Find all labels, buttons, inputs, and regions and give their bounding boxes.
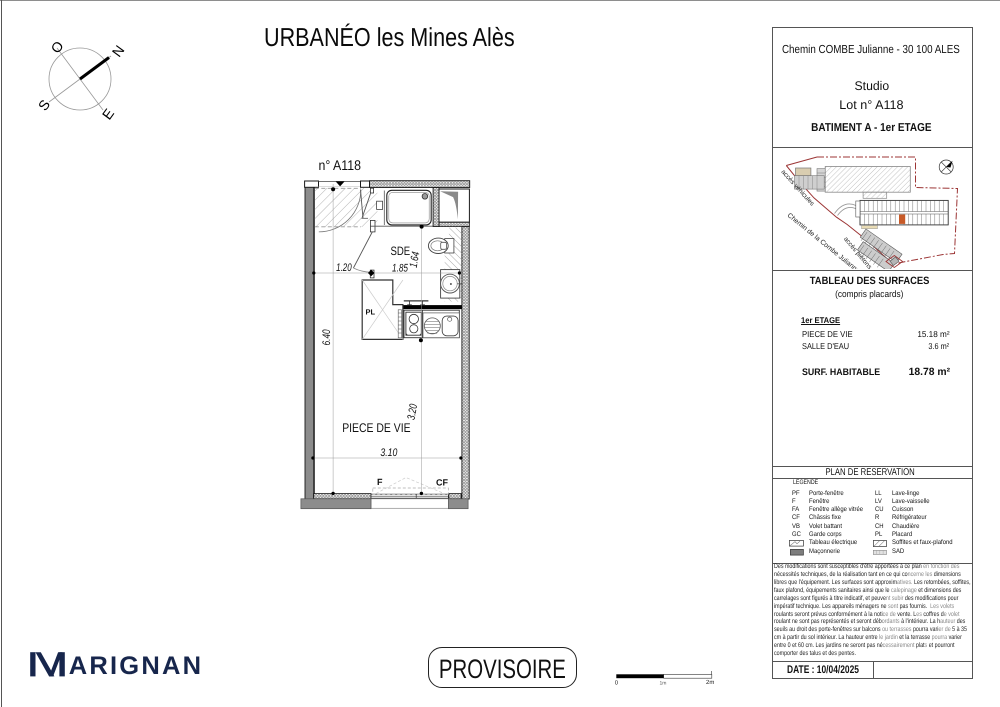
svg-text:0: 0	[615, 680, 619, 687]
svg-text:3.10: 3.10	[380, 447, 398, 459]
svg-text:n° A118: n° A118	[319, 157, 362, 173]
svg-text:ARIGNAN: ARIGNAN	[69, 652, 203, 680]
svg-text:6.40: 6.40	[321, 329, 333, 346]
svg-text:PL: PL	[366, 308, 376, 317]
svg-text:N: N	[109, 42, 128, 60]
svg-text:3.20: 3.20	[406, 402, 421, 420]
svg-text:1.85: 1.85	[392, 263, 409, 275]
svg-text:PIECE DE VIE: PIECE DE VIE	[342, 421, 410, 435]
svg-text:F: F	[377, 477, 383, 487]
svg-text:1m: 1m	[660, 681, 667, 687]
svg-text:2m: 2m	[706, 679, 714, 686]
svg-text:CF: CF	[436, 478, 448, 488]
svg-text:S: S	[35, 97, 53, 114]
svg-text:E: E	[99, 106, 117, 123]
svg-text:1.20: 1.20	[336, 262, 352, 274]
svg-text:SDE: SDE	[391, 244, 411, 258]
svg-text:O: O	[47, 38, 66, 56]
svg-text:1.64: 1.64	[408, 251, 423, 269]
